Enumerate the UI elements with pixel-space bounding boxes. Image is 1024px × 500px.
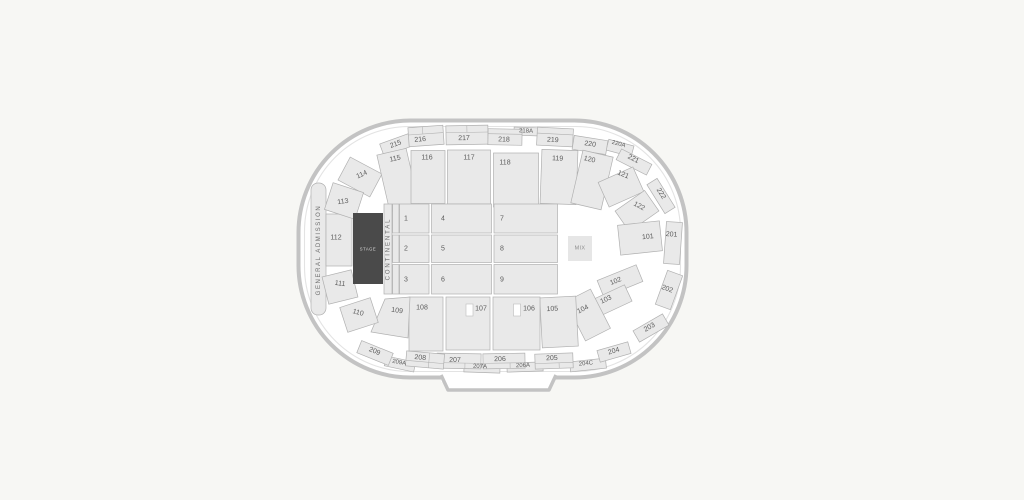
section-101-label: 101: [642, 233, 654, 241]
section-101-shape[interactable]: [618, 221, 663, 255]
stage-label: STAGE: [360, 247, 376, 252]
section-107-entrance-icon: [466, 304, 473, 316]
continental-strip-seg1[interactable]: [393, 204, 399, 233]
section-219[interactable]: 219: [537, 127, 574, 147]
section-208-label: 208: [414, 354, 426, 362]
continental-strip-seg2[interactable]: [393, 235, 399, 263]
section-201-shape[interactable]: [664, 221, 683, 264]
section-205[interactable]: 205: [535, 353, 574, 369]
section-112-label: 112: [330, 235, 341, 242]
section-118-label: 118: [499, 160, 510, 167]
floor-section-4-label: 4: [441, 216, 445, 223]
section-206-label: 206: [494, 356, 506, 363]
section-201[interactable]: 201: [664, 221, 683, 264]
floor-section-5-label: 5: [441, 246, 445, 253]
floor: CONTINENTAL 1 2 3 4 5 6 7 8 9 STAGE MIX: [353, 204, 592, 294]
section-218[interactable]: 218: [488, 129, 522, 146]
section-118[interactable]: 118: [494, 153, 539, 207]
section-119-label: 119: [552, 155, 564, 162]
floor-section-1-label: 1: [404, 216, 408, 223]
floor-section-6-label: 6: [441, 277, 445, 284]
section-207A-label: 207A: [473, 364, 487, 370]
section-111-label: 111: [334, 280, 346, 288]
section-116-label: 116: [421, 155, 432, 162]
section-208[interactable]: 208: [405, 351, 444, 369]
section-105-shape[interactable]: [540, 296, 579, 348]
section-108[interactable]: 108: [409, 297, 443, 351]
floor-section-2-label: 2: [404, 246, 408, 253]
section-107[interactable]: 107: [446, 297, 490, 350]
floor-section-9-label: 9: [500, 277, 504, 284]
section-216-label: 216: [414, 136, 426, 144]
section-108-label: 108: [416, 305, 428, 312]
floor-section-8-label: 8: [500, 246, 504, 253]
section-219-label: 219: [547, 137, 559, 145]
section-106-label: 106: [523, 306, 535, 313]
section-106-entrance-icon: [514, 304, 521, 316]
section-217-label: 217: [458, 135, 470, 142]
floor-section-7-label: 7: [500, 216, 504, 223]
section-201-label: 201: [665, 231, 677, 239]
section-117-label: 117: [463, 155, 474, 162]
continental-strip-seg3[interactable]: [393, 265, 399, 295]
section-general-admission[interactable]: GENERAL ADMISSION: [311, 183, 326, 315]
section-205-label: 205: [546, 355, 558, 362]
section-101[interactable]: 101: [618, 221, 663, 255]
section-105[interactable]: 105: [540, 296, 579, 348]
arena-notch: [441, 375, 556, 390]
section-217[interactable]: 217: [446, 125, 488, 145]
continental-label: CONTINENTAL: [385, 218, 391, 281]
section-112[interactable]: 112: [326, 214, 352, 266]
section-216[interactable]: 216: [408, 125, 444, 146]
section-106[interactable]: 106: [493, 297, 540, 350]
general-admission-label: GENERAL ADMISSION: [316, 205, 322, 296]
section-207-label: 207: [449, 357, 461, 364]
section-116[interactable]: 116: [411, 151, 445, 204]
section-117[interactable]: 117: [448, 150, 491, 204]
section-206A-label: 206A: [516, 363, 530, 369]
section-105-label: 105: [546, 306, 558, 314]
section-107-label: 107: [475, 306, 487, 313]
arena-seating-map: GENERAL ADMISSION 215 216 217 218 219 22…: [0, 0, 1024, 500]
floor-section-3-label: 3: [404, 277, 408, 284]
section-218A-label: 218A: [519, 128, 533, 134]
section-218-label: 218: [498, 136, 510, 143]
mix-label: MIX: [575, 246, 586, 252]
